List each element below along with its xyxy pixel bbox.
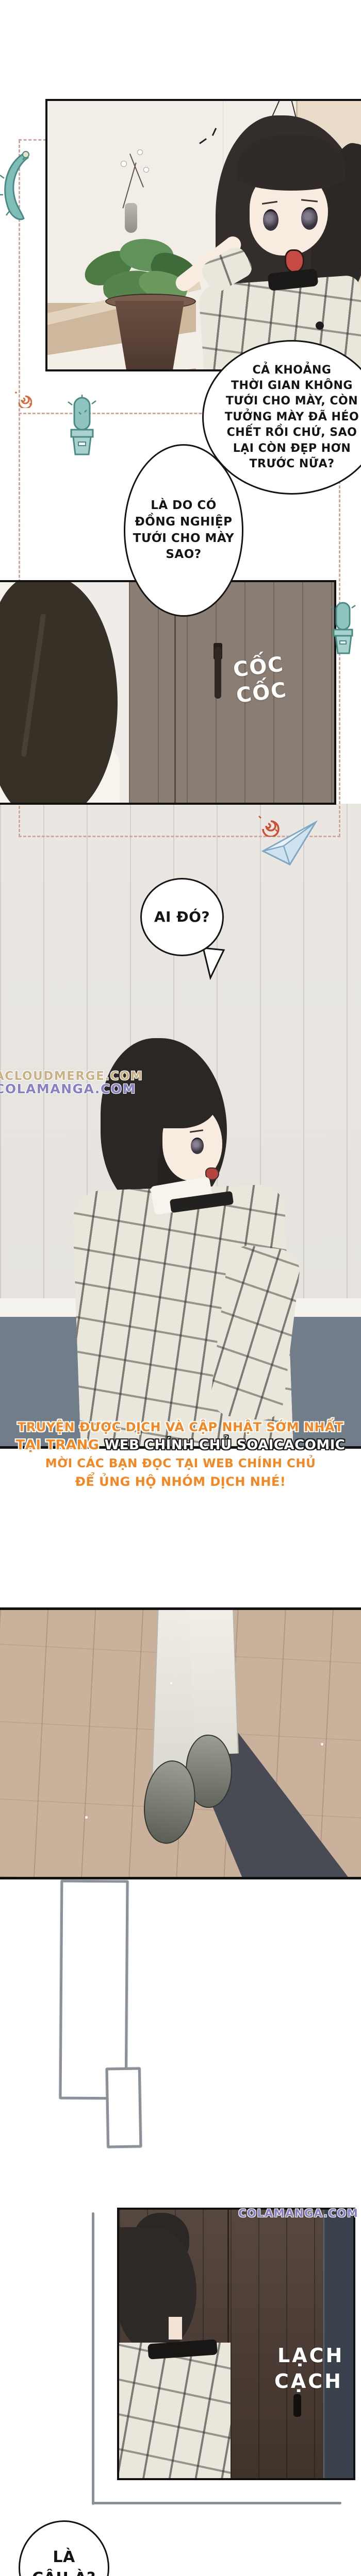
panel-plant-scene (45, 99, 361, 371)
sfx-rattle-1: LẠCH (277, 2344, 344, 2367)
promo-line-2-prefix: TẠI TRANG (16, 1437, 100, 1453)
woman-eye (191, 1138, 204, 1154)
bubble-text: CHẾT RỒI CHỨ, SAO (227, 425, 357, 440)
vase (125, 203, 137, 233)
promo-line-1: TRUYỆN ĐƯỢC DỊCH VÀ CẬP NHẬT SỚM NHẤT (0, 1420, 361, 1434)
bubble-text: CẬU À? (32, 2568, 96, 2576)
cucumber-doodle-icon (0, 147, 34, 228)
watermark-colamanga: COLAMANGA.COM (0, 1081, 136, 1096)
bubble-tail (200, 947, 227, 982)
cactus-doodle-icon (65, 395, 99, 460)
girl-bangs (237, 135, 346, 191)
spiral-doodle-icon (14, 388, 32, 410)
promo-line-3: MỜI CÁC BẠN ĐỌC TẠI WEB CHÍNH CHỦ (0, 1457, 361, 1470)
speech-bubble-coworker-question: LÀ DO CÓ ĐỒNG NGHIỆP TƯỚI CHO MÀY SAO? (124, 444, 243, 617)
bubble-text: THỜI GIAN KHÔNG (231, 378, 353, 394)
bubble-text: CẢ KHOẢNG (253, 363, 332, 378)
blossom (121, 161, 127, 167)
branch (129, 154, 144, 188)
surprise-mark (212, 128, 217, 136)
sketch-line-horizontal (92, 2502, 341, 2504)
surprise-mark (199, 138, 207, 144)
cactus-doodle-icon (329, 601, 359, 658)
bubble-text: ĐỒNG NGHIỆP (135, 514, 233, 531)
door-handle-bar (215, 647, 221, 699)
comic-page: CẢ KHOẢNG THỜI GIAN KHÔNG TƯỚI CHO MÀY, … (0, 0, 361, 2576)
bubble-text: TƯỚI CHO MÀY, CÒN (226, 394, 358, 409)
bubble-text: LÀ DO CÓ (151, 498, 217, 514)
bubble-text: SAO? (166, 547, 201, 563)
girl-eye (301, 207, 318, 230)
panel-floor-feet (0, 1607, 361, 1879)
speech-bubble-who-is-it: AI ĐÓ? (140, 878, 224, 956)
promo-line-2-rest: WEB CHÍNH CHỦ SOAICACOMIC (105, 1437, 346, 1453)
sketch-rectangle-small (106, 2067, 142, 2148)
speech-bubble-is-it-you: LÀ CẬU À? (19, 2520, 109, 2576)
girl-long-hair (0, 580, 118, 805)
blossom (137, 149, 143, 155)
door (129, 582, 336, 805)
woman-jacket (117, 2343, 231, 2480)
jacket-button (316, 321, 324, 330)
bubble-text: AI ĐÓ? (154, 907, 210, 927)
promo-line-2: TẠI TRANGWEB CHÍNH CHỦ SOAICACOMIC (0, 1437, 361, 1453)
dashed-frame-top (19, 139, 46, 141)
sketch-line-vertical (92, 2212, 94, 2505)
blossom (143, 167, 149, 173)
bubble-text: LÀ (53, 2547, 75, 2568)
sketch-rectangle-large (59, 1880, 129, 2100)
bubble-text: TƯỚI CHO MÀY (133, 531, 234, 547)
watermark-colamanga-2: COLAMANGA.COM (238, 2207, 358, 2219)
woman-neck (169, 2317, 182, 2340)
girl-eye (263, 209, 278, 231)
bubble-text: LẠI CÒN ĐẸP HƠN (233, 441, 351, 456)
door-handle (293, 2394, 301, 2417)
floor-sparkle (170, 1682, 172, 1684)
sfx-rattle-2: CẠCH (274, 2370, 343, 2393)
floor-sparkle (85, 1816, 88, 1819)
bubble-text: TRƯỚC NỮA? (250, 456, 335, 472)
pant-leg (189, 1607, 239, 1755)
bubble-text: TƯỞNG MÀY ĐÃ HÉO (225, 410, 359, 425)
floor-sparkle (321, 1743, 323, 1745)
branch (122, 163, 136, 209)
paper-plane-doodle-icon (261, 819, 319, 869)
promo-line-4: ĐỂ ỦNG HỘ NHÓM DỊCH NHÉ! (0, 1475, 361, 1489)
